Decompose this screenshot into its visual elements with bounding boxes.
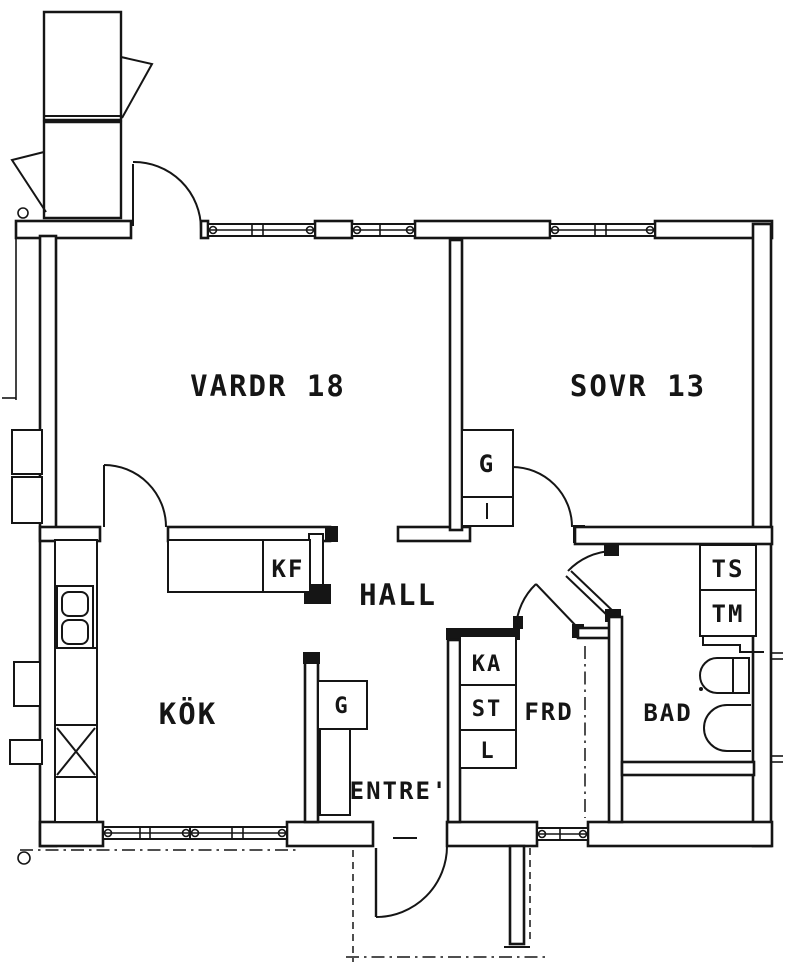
room-label-hall: HALL <box>359 578 437 612</box>
bathroom-door <box>566 551 615 618</box>
drain-symbol <box>18 852 30 864</box>
balcony-door <box>133 162 201 229</box>
storage-door <box>516 584 578 628</box>
balcony <box>12 12 152 218</box>
room-label-kitchen: KÖK <box>159 697 217 731</box>
room-label-storage: FRD <box>524 698 573 726</box>
floor-plan-drawing: VARDR 18 SOVR 13 HALL KÖK ENTRE' FRD BAD… <box>0 0 789 970</box>
label-washing-machine: TM <box>712 600 745 628</box>
bathroom-sink <box>704 705 751 751</box>
label-cabinet-ka: KA <box>472 652 503 677</box>
toilet <box>700 658 749 693</box>
drain-symbol <box>18 208 28 218</box>
label-bedroom-wardrobe: G <box>479 450 495 478</box>
window <box>550 224 655 236</box>
label-cabinet-st: ST <box>472 697 503 722</box>
label-entry-wardrobe: G <box>334 694 349 719</box>
window <box>537 828 588 840</box>
kitchen-counter <box>55 540 97 822</box>
room-label-bedroom: SOVR 13 <box>570 369 706 403</box>
kitchen-door <box>104 465 166 527</box>
label-fridge-freezer: KF <box>272 555 305 583</box>
window <box>103 827 190 839</box>
room-label-bathroom: BAD <box>643 699 692 727</box>
reference-dot <box>699 687 703 691</box>
bedroom-door <box>512 467 572 527</box>
window <box>208 224 315 236</box>
label-cabinet-l: L <box>480 739 495 764</box>
bedroom-wardrobe-unit <box>462 430 513 526</box>
window <box>190 827 287 839</box>
kitchen-sink <box>57 586 93 648</box>
room-label-living-room: VARDR 18 <box>190 369 346 403</box>
room-label-entry: ENTRE' <box>350 777 449 805</box>
window <box>352 224 415 236</box>
label-drying-cabinet: TS <box>712 555 745 583</box>
floor-plan-page: VARDR 18 SOVR 13 HALL KÖK ENTRE' FRD BAD… <box>0 0 789 970</box>
front-door <box>376 838 447 917</box>
